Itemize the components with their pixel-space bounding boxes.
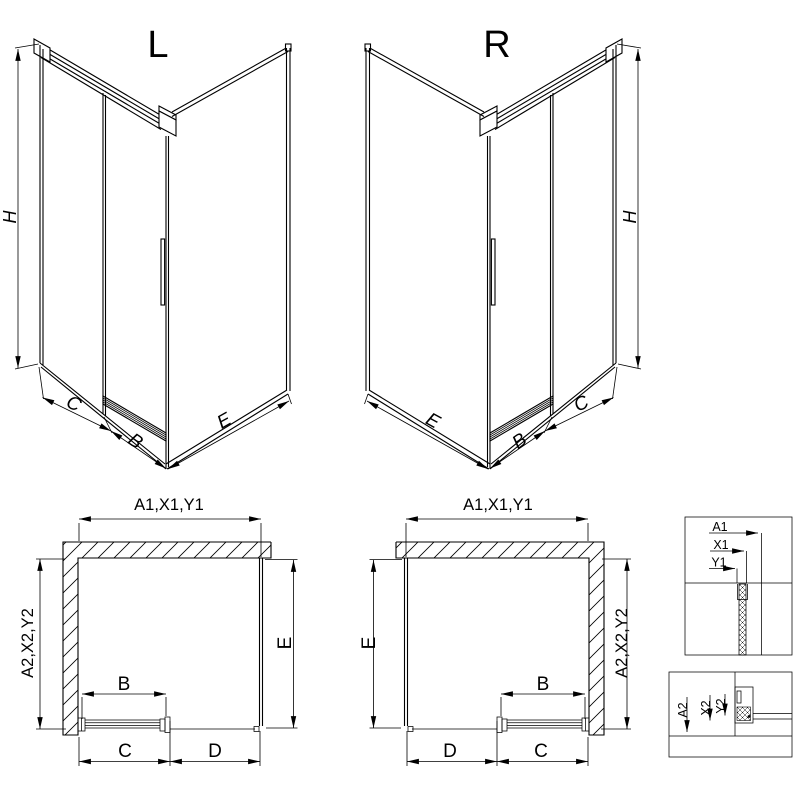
plan-right-d-label: D xyxy=(443,741,457,762)
dim-label-h-left: H xyxy=(0,210,20,224)
plan-left-b-label: B xyxy=(118,674,131,695)
detail-box-bottom: A2 X2 Y2 xyxy=(669,672,792,757)
roller-dot xyxy=(748,715,751,718)
side-glass-plan xyxy=(260,558,263,726)
dim-label-h-right: H xyxy=(620,210,640,224)
door-handle xyxy=(161,239,165,305)
wall-outline xyxy=(63,542,271,735)
door-track-plan xyxy=(78,717,259,733)
plan-right-e-label: E xyxy=(359,637,380,650)
dimension-lines xyxy=(15,44,292,469)
plan-left-e-label: E xyxy=(275,637,296,650)
plan-right-side-label: A2,X2,Y2 xyxy=(613,608,631,678)
view-3d-left-labels: L H C B E xyxy=(0,24,235,454)
glass-section-strip xyxy=(739,584,746,655)
detail-x2-label: X2 xyxy=(699,700,713,715)
diagram-canvas: L H C B E R H C B E xyxy=(0,0,800,800)
view-3d-right-graphics xyxy=(365,39,642,469)
label-r: R xyxy=(483,24,510,66)
dim-label-e-left: E xyxy=(214,409,236,434)
shower-enclosure-dimension-diagram: L H C B E R H C B E xyxy=(0,0,800,800)
plan-left-top-label: A1,X1,Y1 xyxy=(134,496,204,514)
dim-label-b-right: B xyxy=(509,429,532,454)
detail-a2-label: A2 xyxy=(676,702,690,717)
plan-view-left-labels: A1,X1,Y1 A2,X2,Y2 E B C D xyxy=(19,496,296,762)
view-3d-left-graphics xyxy=(15,39,292,469)
plan-right-b-label: B xyxy=(537,674,550,695)
side-panel xyxy=(166,44,291,469)
plan-right-c-label: C xyxy=(534,741,548,762)
detail-a1-label: A1 xyxy=(712,520,727,534)
wall-hatching xyxy=(63,542,604,735)
detail-top-frame xyxy=(685,517,792,655)
detail-y1-label: Y1 xyxy=(711,556,726,570)
view-3d-right-labels: R H C B E xyxy=(422,24,640,454)
dim-label-c-left: C xyxy=(63,392,85,417)
plan-right-top-label: A1,X1,Y1 xyxy=(463,496,533,514)
detail-box-top: A1 X1 Y1 xyxy=(685,517,792,655)
plan-left-c-label: C xyxy=(118,741,132,762)
label-l: L xyxy=(147,24,168,66)
plan-left-side-label: A2,X2,Y2 xyxy=(19,608,37,678)
detail-x1-label: X1 xyxy=(713,538,728,552)
corner-edge xyxy=(166,136,169,469)
detail-y2-label: Y2 xyxy=(714,698,728,713)
plan-left-d-label: D xyxy=(208,741,222,762)
dim-label-c-right: C xyxy=(571,392,593,417)
